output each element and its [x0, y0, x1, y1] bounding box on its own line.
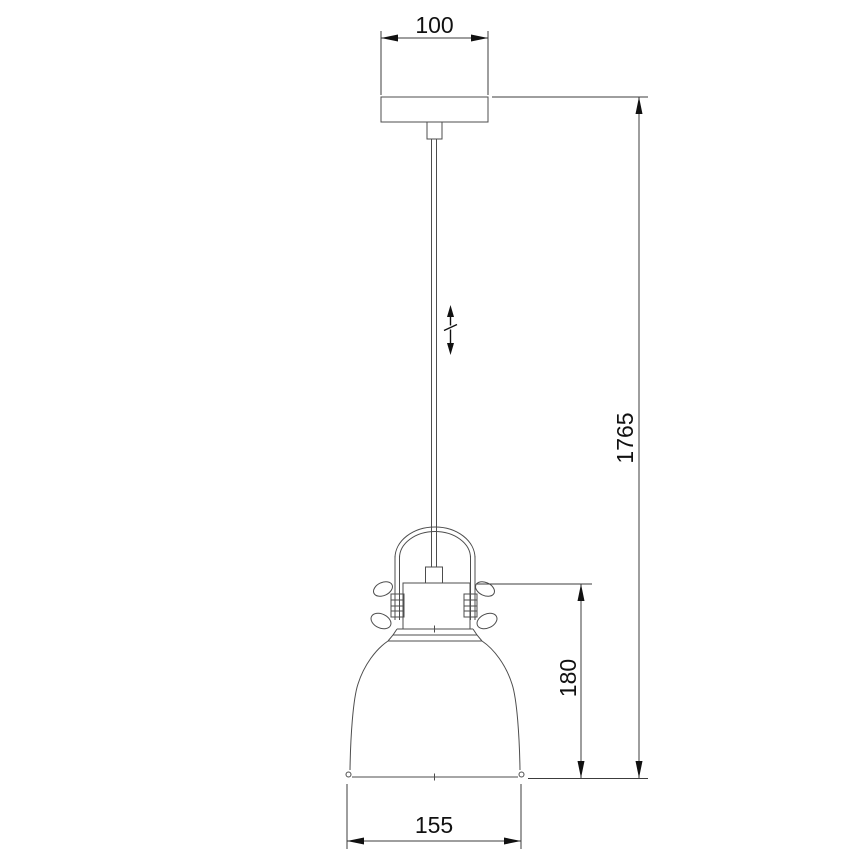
ceiling-canopy — [381, 97, 488, 122]
dimension-canopy-width: 100 — [381, 12, 488, 95]
wing-nut-left — [369, 579, 404, 632]
yoke-arc-inner — [400, 532, 471, 559]
dim-arrow-up — [636, 97, 643, 114]
wing-ear — [475, 610, 500, 632]
dim-arrow-up — [578, 584, 585, 601]
arrow-up-head — [447, 305, 454, 317]
shade-rim-curl-left — [346, 772, 351, 777]
bell-shade — [346, 641, 524, 781]
cable-connector-block — [426, 567, 443, 583]
dimension-value: 180 — [555, 659, 581, 697]
shade-profile-left — [350, 641, 388, 770]
dim-arrow-left — [347, 838, 364, 845]
dim-arrow-right — [504, 838, 521, 845]
arrow-down-head — [447, 343, 454, 355]
wing-nut-right — [464, 579, 499, 632]
dimension-value: 100 — [415, 12, 453, 38]
wing-ear — [369, 610, 394, 632]
lamp-drawing — [346, 97, 524, 781]
pendant-lamp-dimension-drawing: 100 1765 180 155 — [0, 0, 868, 868]
dim-arrow-right — [471, 35, 488, 42]
dimension-shade-height: 180 — [477, 584, 592, 778]
shade-neck-bands — [388, 626, 482, 642]
dimension-value: 1765 — [612, 412, 638, 463]
shade-rim-curl-right — [519, 772, 524, 777]
canopy-stem-block — [427, 122, 442, 139]
dimension-value: 155 — [415, 812, 453, 838]
dim-arrow-down — [636, 761, 643, 778]
dim-arrow-down — [578, 761, 585, 778]
adjustable-height-icon — [444, 305, 457, 355]
lamp-body — [403, 583, 470, 629]
dimension-shade-diameter: 155 — [347, 784, 521, 849]
shade-profile-right — [482, 641, 520, 770]
dim-arrow-left — [381, 35, 398, 42]
technical-drawing-page: 100 1765 180 155 — [0, 0, 868, 868]
